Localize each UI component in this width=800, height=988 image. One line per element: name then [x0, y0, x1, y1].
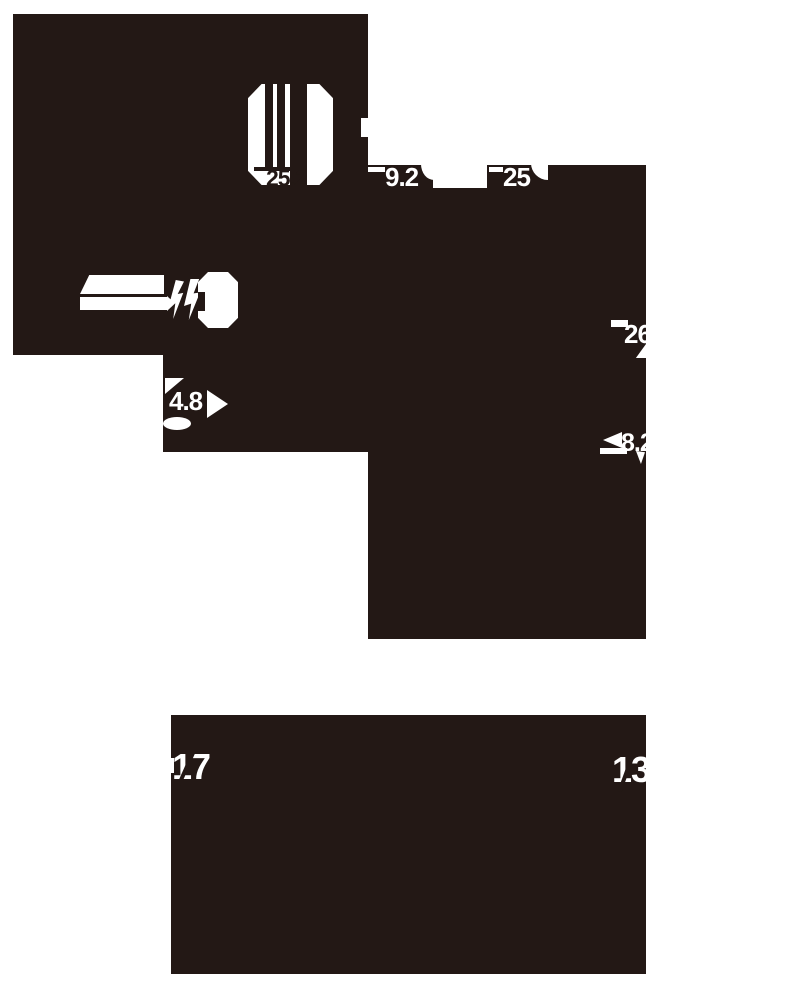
dim-label-band-right: 25	[503, 164, 530, 190]
dim-group-bottom-right: 13	[608, 748, 646, 794]
extension-line-halo	[361, 118, 369, 137]
front-silhouette	[171, 715, 646, 974]
dimension-line	[489, 167, 503, 172]
plate-top-face	[80, 274, 164, 294]
arrowhead-left-icon	[603, 432, 622, 448]
dim-label-right-upper: 26	[624, 321, 646, 347]
dim-label-left-step: 4.8	[169, 388, 202, 414]
main-silhouette-body	[368, 188, 646, 639]
leader-halo-notch	[198, 292, 205, 311]
stripe	[265, 84, 273, 170]
dimension-line	[368, 167, 385, 172]
stripe	[277, 84, 285, 170]
striped-part: 25.2	[248, 84, 333, 185]
dim-group-right-lower: 8.2	[600, 427, 646, 465]
leader-halo-blob	[163, 417, 191, 430]
break-mark	[636, 451, 645, 464]
dim-label-band-left: 9.2	[385, 164, 418, 190]
diagram-canvas: 25.2 9.2 25 26 8.2 4.8 17 13	[0, 0, 800, 988]
plate-front-face	[80, 297, 167, 310]
dim-group-right-upper: 26	[608, 317, 646, 348]
